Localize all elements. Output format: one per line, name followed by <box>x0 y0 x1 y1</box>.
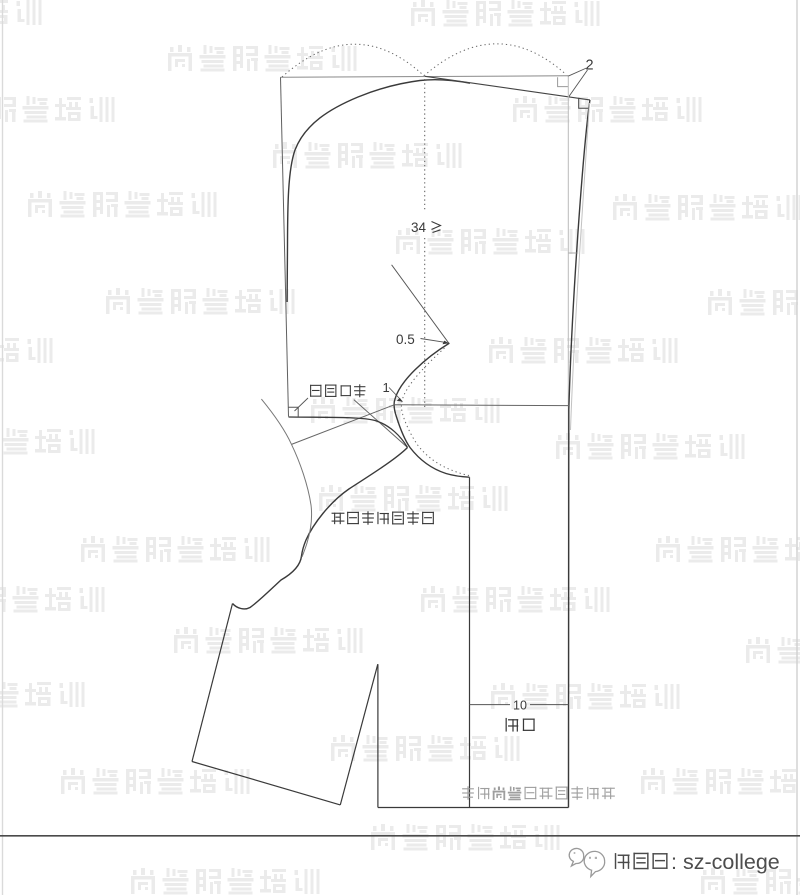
svg-text:10: 10 <box>513 699 527 713</box>
svg-text:1: 1 <box>383 380 390 395</box>
svg-text:0.5: 0.5 <box>396 332 415 347</box>
svg-text:34: 34 <box>411 220 427 235</box>
svg-text:: sz-college: : sz-college <box>671 850 780 874</box>
